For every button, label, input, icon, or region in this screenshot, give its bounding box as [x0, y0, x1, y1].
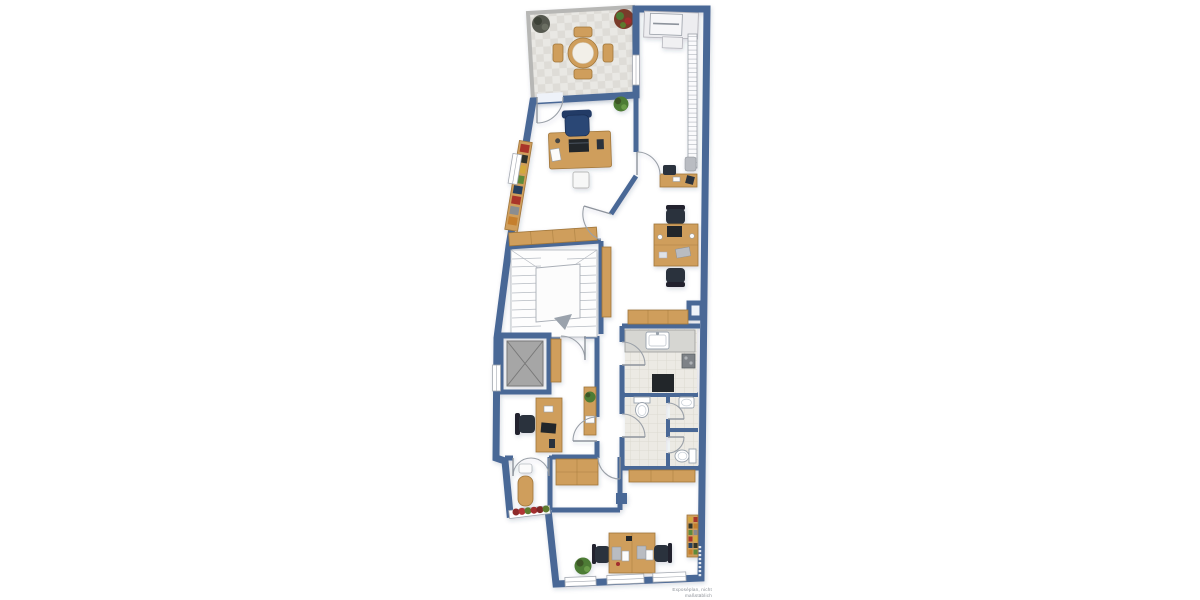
stairwell	[511, 250, 597, 337]
terrace-plant-dark-icon	[532, 15, 550, 33]
office-bottom	[575, 470, 699, 575]
laptop-icon	[541, 422, 557, 433]
desk-item	[616, 562, 620, 566]
phone-icon	[658, 235, 663, 240]
office-left	[515, 387, 596, 452]
plant-icon	[585, 392, 596, 403]
office-chair-icon	[519, 415, 535, 433]
desk-item	[673, 177, 680, 182]
hall-sideboard-2	[602, 247, 611, 317]
flower-box-icon	[525, 507, 532, 514]
terrace-door-opening	[537, 92, 563, 102]
bookshelf	[687, 515, 698, 557]
toilet-icon	[634, 397, 650, 418]
terrace-plant-red-icon	[614, 9, 634, 29]
office-chair-back	[666, 282, 685, 287]
chair-icon	[663, 165, 676, 175]
faucet-icon	[656, 332, 659, 335]
cooktop-icon	[682, 354, 695, 368]
laptop-icon	[569, 139, 589, 153]
terrace-chair-icon	[603, 44, 613, 62]
hall-plant-icon	[614, 97, 629, 112]
toilet-icon	[675, 449, 696, 463]
office-chair-icon	[654, 545, 669, 562]
stair-landing	[536, 264, 580, 322]
office-sideboard	[628, 310, 688, 324]
notepad-icon	[659, 252, 667, 258]
office-chair-icon	[666, 268, 685, 283]
desk-item	[626, 536, 632, 541]
terrace-chair-icon	[553, 44, 563, 62]
phone-icon	[690, 234, 695, 239]
terrace	[528, 7, 636, 101]
door-swing	[561, 336, 585, 360]
office-upper	[505, 109, 612, 231]
flower-box-icon	[513, 509, 520, 516]
flower-box-icon	[537, 506, 544, 513]
papers-icon	[550, 148, 561, 161]
flower-box-icon	[531, 507, 538, 514]
stool-icon	[685, 157, 696, 171]
office-chair-back	[668, 543, 672, 563]
laptop-icon	[612, 547, 621, 560]
door-swing	[598, 457, 620, 479]
utility-room	[643, 11, 698, 171]
notepad-icon	[646, 550, 653, 560]
sideboard	[629, 470, 695, 482]
french-door-swing	[531, 458, 549, 476]
vestibule	[556, 459, 598, 485]
wall-radiator-shelf-icon	[688, 34, 697, 168]
waste-bin-icon	[573, 172, 589, 188]
office-left-sideboard	[584, 387, 596, 435]
floor-plan-page: Exposéplan, nicht maßstäblich	[0, 0, 1200, 600]
elevator	[501, 335, 549, 392]
papers-icon	[544, 406, 553, 412]
flower-box-icon	[543, 506, 550, 513]
phone-icon	[597, 139, 604, 149]
plant-icon	[575, 558, 592, 575]
office-chair-icon	[595, 546, 610, 563]
plan-caption: Exposéplan, nicht maßstäblich	[648, 587, 712, 599]
laptop-icon	[667, 226, 682, 237]
window	[493, 365, 501, 391]
wash-basin-icon	[679, 397, 694, 408]
door-swing	[637, 152, 660, 175]
refrigerator-icon	[652, 374, 674, 392]
balcony-bay	[518, 464, 533, 514]
terrace-chair-icon	[574, 27, 592, 37]
office-chair-icon	[666, 209, 685, 224]
laptop-icon	[637, 546, 646, 559]
double-desk-group	[592, 533, 672, 573]
building	[493, 9, 708, 587]
hall-sideboard-3	[551, 339, 561, 382]
paper-tray-icon	[662, 37, 682, 49]
bay-chair-icon	[519, 464, 532, 473]
round-table-top	[573, 43, 594, 64]
column	[616, 493, 627, 504]
terrace-chair-icon	[574, 69, 592, 79]
phone-icon	[549, 439, 555, 448]
notepad-icon	[622, 551, 629, 561]
bay-table	[518, 476, 533, 506]
interior-window	[633, 55, 640, 85]
flower-box-icon	[519, 508, 526, 515]
office-chair-seat	[565, 115, 590, 137]
desk-group	[548, 109, 612, 169]
floor-plan-drawing	[0, 0, 1200, 600]
